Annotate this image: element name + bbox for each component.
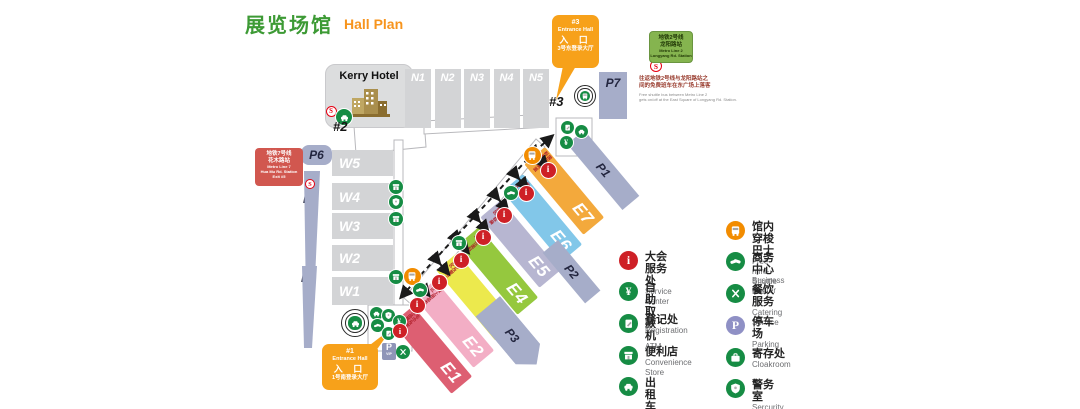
hall-n3: N3 [464,69,490,128]
entrance3-cn: 入 口 [552,34,599,46]
entrance2-label: #2 [333,119,347,134]
shuttle-note: 往返地铁2号线与龙阳路站之 间的免费班车在东广场上落客 Free shuttle… [639,76,769,102]
hall-e4-label: E4 [502,278,532,308]
convenience-store-icon [619,346,638,365]
legend-cn: 出租车 [645,377,659,409]
entrance1-en: Entrance Hall [322,356,378,363]
metro-line2-badge: 地铁2号线 龙阳路站 Metro Line 2 Longyang Rd. Sta… [649,31,693,63]
vip-parking-vip: VIP [382,352,396,356]
shuttle-bus-icon [726,221,745,240]
metro-line7-exit: Exit #5 [255,174,303,179]
registration-icon [561,121,574,134]
entrance1-cn: 入 口 [322,363,378,375]
service-center-icon: i [393,324,407,338]
legend-cn: 寄存处 [752,348,791,360]
convenience-store-icon [452,236,466,250]
legend-en: Cloakroom [752,360,791,370]
business-center-icon [726,252,745,271]
legend-item-convenience-store: 便利店Convenience Store [619,346,692,378]
metro-icon: S [305,179,315,189]
hall-w4: W4 [332,183,393,210]
convenience-store-icon [389,270,403,284]
vip-parking-badge: P VIP [382,343,396,360]
taxi-pickup-icon [341,309,369,337]
registration-icon [619,314,638,333]
entrance3-en: Entrance Hall [552,27,599,34]
hall-e1-label: E1 [436,357,466,387]
legend-item-cloakroom: 寄存处Cloakroom [726,348,791,370]
service-center-icon: i [476,230,491,245]
parking-p6: P6 [301,145,332,165]
hall-w3: W3 [332,213,393,239]
shuttle-note-cn2: 间的免费班车在东广场上落客 [639,83,769,90]
legend-cn: 商务中心 [752,252,784,276]
legend-cn: 餐饮服务 [752,284,782,308]
service-center-icon: i [541,163,556,178]
hall-e2-label: E2 [458,331,488,361]
parking-p4-label: P4 [301,271,316,285]
hall-n5: N5 [523,69,549,128]
convenience-store-icon [389,212,403,226]
page-title-en: Hall Plan [344,16,403,32]
vip-parking-p: P [382,343,396,352]
legend-en: Convenience Store [645,358,692,378]
hall-n4: N4 [494,69,520,128]
taxi-icon [575,125,588,138]
shuttle-bus-icon [404,268,421,285]
legend-item-security: 警务室Sercurity Office [726,379,784,409]
legend-item-registration: 登记处Registration [619,314,688,336]
entrance1-desc: 1号南登录大厅 [322,375,378,382]
parking-p5-label: P5 [303,192,318,206]
metro-line2-en2: Longyang Rd. Station [650,53,692,58]
metro-line7-badge: 地铁7号线 花木路站 Metro Line 7 Hua Mu Rd. Stati… [255,148,303,186]
parking-p7: P7 [599,72,627,119]
legend-item-parking: P停车场Parking [726,316,779,350]
legend-cn: 便利店 [645,346,692,358]
taxi-icon [619,377,638,396]
service-center-icon: i [497,208,512,223]
service-center-icon: i [519,186,534,201]
shuttle-pickup-icon [574,85,596,107]
business-center-icon [413,283,427,297]
entrance3-balloon: #3 Entrance Hall 入 口 3号东登录大厅 [552,15,599,68]
catering-icon [396,345,410,359]
parking-icon: P [726,316,745,335]
hall-w5: W5 [332,150,393,176]
legend-cn: 停车场 [752,316,779,340]
shuttle-note-cn1: 往返地铁2号线与龙阳路站之 [639,76,769,83]
entrance1-no: #1 [322,348,378,356]
business-center-icon [371,319,384,332]
hall-w2: W2 [332,245,393,271]
business-center-icon [504,186,518,200]
taxi-icon [370,307,383,320]
hall-w1: W1 [332,277,393,305]
service-center-icon: i [454,253,469,268]
hall-e7-label: E7 [568,198,598,228]
catering-icon [726,284,745,303]
entrance3-desc: 3号东登录大厅 [552,46,599,53]
legend-cn: 警务室 [752,379,784,403]
service-center-icon: i [410,298,425,313]
service-center-icon: i [432,275,447,290]
service-center-icon: i [619,251,638,270]
hall-n1: N1 [405,69,431,128]
legend-item-taxi: 出租车Taxi [619,377,659,409]
hotel-building-icon [346,87,392,119]
legend-cn: 登记处 [645,314,688,326]
legend-en: Registration [645,326,688,336]
hall-n2: N2 [435,69,461,128]
cloakroom-icon [726,348,745,367]
security-icon [389,195,403,209]
page-title-cn: 展览场馆 [245,9,333,38]
west-corridor [394,140,403,312]
entrance1-balloon: #1 Entrance Hall 入 口 1号南登录大厅 [322,344,378,390]
atm-icon: ¥ [560,136,573,149]
atm-icon: ¥ [619,282,638,301]
hall-plan-map: 展览场馆 Hall Plan Kerry Hotel N1N2N3N4N5W5W… [0,0,1080,409]
shuttle-note-en2: gets on/off at the East Square of Longya… [639,97,769,102]
shuttle-bus-icon [524,147,541,164]
entrance3-no: #3 [552,19,599,27]
entrance3-label: #3 [549,94,563,109]
kerry-hotel-label: Kerry Hotel [326,65,412,82]
legend-en: Sercurity Office [752,403,784,409]
security-icon [726,379,745,398]
convenience-store-icon [389,180,403,194]
metro-icon: S [326,106,337,117]
